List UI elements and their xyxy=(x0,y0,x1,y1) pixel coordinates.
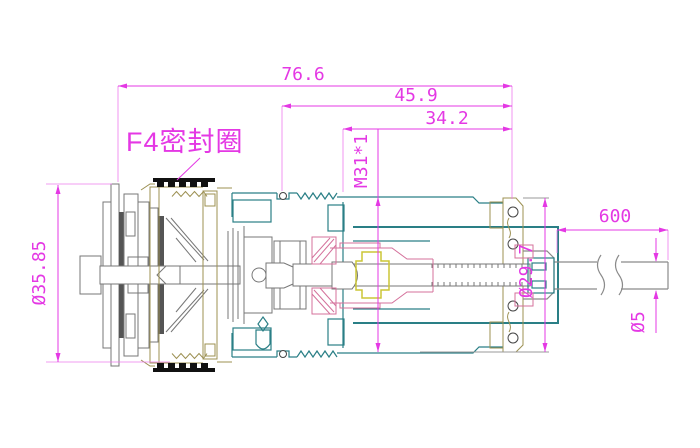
dimension-layer: 76.6 45.9 34.2 M31*1 Ø35.85 xyxy=(29,64,668,362)
seal-label: F4密封圈 xyxy=(126,127,244,157)
drawing-canvas: 76.6 45.9 34.2 M31*1 Ø35.85 xyxy=(0,0,700,448)
dim-overall-length-text: 76.6 xyxy=(281,64,324,85)
dim-cable-diameter-text: Ø5 xyxy=(628,311,649,333)
socket-bullet xyxy=(332,262,358,289)
dim-body-diameter: Ø29.7 xyxy=(516,198,548,352)
dim-body-diameter-text: Ø29.7 xyxy=(516,244,537,298)
seal-callout: F4密封圈 xyxy=(126,127,244,180)
dim-overall-length: 76.6 xyxy=(118,64,512,89)
dim-cable-diameter: Ø5 xyxy=(628,238,659,333)
dim-mid-length-text: 45.9 xyxy=(394,85,437,106)
dim-front-length-text: 34.2 xyxy=(425,108,468,129)
connector-cross-section-drawing: 76.6 45.9 34.2 M31*1 Ø35.85 xyxy=(0,0,700,448)
capsule-detail xyxy=(256,330,270,349)
f4-seal-top xyxy=(153,178,215,187)
plunger xyxy=(266,263,293,288)
cable-break-mark xyxy=(598,255,605,295)
seal-leader-line xyxy=(177,158,200,180)
diamond-detail xyxy=(258,317,268,331)
internal-mechanism xyxy=(228,226,306,349)
dim-flange-diameter-text: Ø35.85 xyxy=(29,240,50,305)
ball-detent xyxy=(252,268,266,282)
cable xyxy=(554,255,668,295)
f4-seal-bottom xyxy=(153,363,215,372)
dim-front-length: 34.2 xyxy=(343,108,512,132)
dim-cable-length: 600 xyxy=(557,206,668,233)
dim-mid-length: 45.9 xyxy=(282,85,512,109)
left-flange-assembly xyxy=(80,184,240,366)
dim-cable-length-text: 600 xyxy=(599,206,632,227)
dim-thread-spec-text: M31*1 xyxy=(351,134,372,188)
dim-flange-diameter: Ø35.85 xyxy=(29,185,61,362)
